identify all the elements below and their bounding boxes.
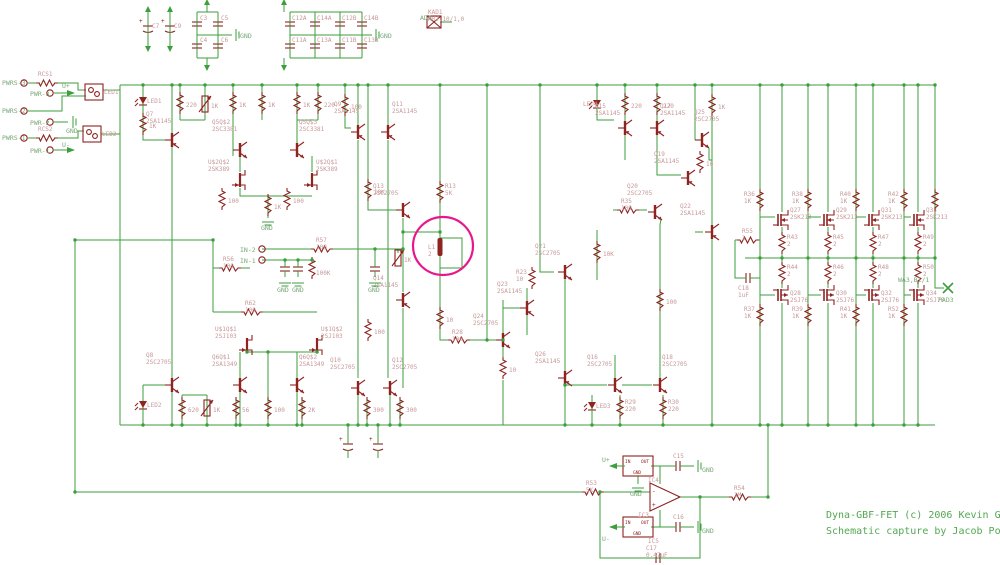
svg-text:C12A: C12A bbox=[292, 15, 307, 22]
npn-q8: Q82SC2705 bbox=[146, 352, 179, 393]
junction-dot bbox=[710, 423, 713, 426]
junction-dot bbox=[438, 83, 441, 86]
svg-text:2SC3381: 2SC3381 bbox=[212, 126, 238, 133]
junction-dot bbox=[933, 256, 936, 259]
svg-text:OUT: OUT bbox=[641, 520, 649, 526]
svg-text:1K: 1K bbox=[888, 198, 896, 205]
svg-text:R28: R28 bbox=[452, 329, 463, 336]
svg-text:2SA1145: 2SA1145 bbox=[654, 158, 680, 165]
svg-text:C18: C18 bbox=[738, 285, 749, 292]
svg-text:LED1: LED1 bbox=[104, 89, 119, 96]
res_v: 2K bbox=[299, 397, 316, 419]
led-led2: LED2 bbox=[135, 396, 162, 414]
svg-text:100: 100 bbox=[621, 205, 632, 212]
svg-text:1K: 1K bbox=[213, 407, 221, 414]
junction-dot bbox=[598, 490, 601, 493]
svg-text:2SC2705: 2SC2705 bbox=[662, 361, 688, 368]
junction-dot bbox=[356, 83, 359, 86]
svg-text:Q20: Q20 bbox=[627, 183, 638, 190]
junction-dot bbox=[806, 83, 809, 86]
svg-text:U$2Q$1: U$2Q$1 bbox=[316, 159, 338, 166]
svg-text:10K: 10K bbox=[603, 251, 614, 258]
cap_v-c14a: C14A bbox=[310, 15, 332, 32]
svg-text:C3: C3 bbox=[200, 15, 208, 22]
res_v-r46: R462 bbox=[825, 262, 844, 284]
svg-text:1K: 1K bbox=[239, 102, 247, 109]
svg-text:C13A: C13A bbox=[317, 37, 332, 44]
junction-dot bbox=[401, 247, 404, 250]
junction-dot bbox=[806, 256, 809, 259]
svg-text:100: 100 bbox=[316, 244, 327, 251]
res_h-rcs1: RCS1 bbox=[36, 71, 58, 86]
junction-dot bbox=[316, 83, 319, 86]
svg-text:1K: 1K bbox=[840, 313, 848, 320]
svg-text:Q13: Q13 bbox=[373, 183, 384, 190]
net-label-gnd: GND bbox=[261, 224, 273, 232]
svg-text:2SC2705: 2SC2705 bbox=[627, 190, 653, 197]
cap_h-c15: C15 bbox=[670, 453, 686, 471]
svg-text:M02,10/1,0: M02,10/1,0 bbox=[428, 16, 465, 23]
svg-text:Q25: Q25 bbox=[694, 109, 705, 116]
pnp-q22: Q222SA1145 bbox=[680, 203, 719, 240]
npn-q10: Q102SC2705 bbox=[330, 357, 365, 396]
svg-text:C17: C17 bbox=[646, 545, 657, 552]
res_h-r57: R57100 bbox=[311, 237, 333, 252]
cap_v-c12b: C12B bbox=[335, 15, 357, 32]
svg-text:R41: R41 bbox=[840, 306, 851, 313]
net-label-pwrs-1: PWRS-1 bbox=[2, 134, 26, 142]
svg-text:2SA1349: 2SA1349 bbox=[299, 361, 325, 368]
svg-text:10: 10 bbox=[509, 367, 517, 374]
fet_n-q31: Q312SK213 bbox=[864, 207, 903, 230]
cap_v bbox=[280, 261, 290, 277]
cap_v-c12a: C12A bbox=[285, 15, 307, 32]
vup bbox=[167, 6, 173, 19]
junction-dot bbox=[438, 230, 441, 233]
svg-text:R54: R54 bbox=[734, 485, 745, 492]
junction-dot bbox=[710, 83, 713, 86]
svg-text:100K: 100K bbox=[316, 270, 331, 277]
box-led1: LED1 bbox=[85, 84, 119, 100]
res_v-r45: R452 bbox=[825, 232, 844, 254]
junction-dot bbox=[501, 338, 504, 341]
junction-dot bbox=[871, 83, 874, 86]
trim: 1K bbox=[199, 96, 219, 112]
led-led3: LED3 bbox=[584, 397, 611, 415]
svg-text:2SC2705: 2SC2705 bbox=[694, 116, 720, 123]
svg-text:Q6Q$1: Q6Q$1 bbox=[212, 354, 230, 361]
junction-dot bbox=[758, 83, 761, 86]
svg-text:Q21: Q21 bbox=[535, 243, 546, 250]
net-label-gnd: GND bbox=[630, 490, 642, 498]
svg-text:OUT: OUT bbox=[641, 459, 649, 465]
npn-q13: Q132SC2705 bbox=[373, 183, 410, 218]
svg-text:1K: 1K bbox=[303, 102, 311, 109]
gnd_r bbox=[698, 460, 701, 472]
arr_r bbox=[60, 90, 75, 96]
res_h-r54: R541M bbox=[729, 485, 751, 500]
svg-text:1K: 1K bbox=[268, 102, 276, 109]
junction-dot bbox=[283, 258, 286, 261]
svg-text:IN: IN bbox=[625, 459, 631, 465]
svg-text:2SA1145: 2SA1145 bbox=[595, 110, 621, 117]
svg-text:2SJ76: 2SJ76 bbox=[881, 297, 899, 304]
junction-dot bbox=[295, 423, 298, 426]
junction-dot bbox=[315, 350, 318, 353]
net-label-pwrs-2: PWRS-2 bbox=[2, 107, 26, 115]
svg-text:100: 100 bbox=[666, 299, 677, 306]
svg-text:2: 2 bbox=[787, 241, 791, 248]
title-line2: Schematic capture by Jacob Potter bbox=[826, 524, 1000, 540]
junction-dot bbox=[365, 423, 368, 426]
junction-dot bbox=[854, 423, 857, 426]
svg-text:2SJ103: 2SJ103 bbox=[215, 333, 237, 340]
net-label-wa3b11: WA3,B1/1 bbox=[898, 276, 929, 284]
junction-dot bbox=[806, 423, 809, 426]
vup bbox=[281, 0, 287, 12]
gnd_r bbox=[236, 29, 239, 41]
net-label-pwr-3: PWR-3 bbox=[30, 90, 50, 98]
net-label-u-: U- bbox=[602, 535, 610, 543]
net-label-in-1: IN-1 bbox=[240, 257, 256, 265]
vdn bbox=[167, 39, 173, 52]
net-label-gnd: GND bbox=[368, 286, 380, 294]
svg-text:R52: R52 bbox=[888, 306, 899, 313]
svg-text:R39: R39 bbox=[792, 306, 803, 313]
junction-dot bbox=[916, 83, 919, 86]
junction-dot bbox=[595, 83, 598, 86]
res_v-r23: R2310 bbox=[516, 267, 535, 289]
svg-text:Q18: Q18 bbox=[662, 354, 673, 361]
net-label-u+: U+ bbox=[602, 456, 610, 464]
res_v-r47: R472 bbox=[870, 232, 889, 254]
fet_n-q29: Q292SK213 bbox=[819, 207, 858, 230]
svg-text:1K: 1K bbox=[718, 104, 726, 111]
svg-text:10: 10 bbox=[446, 317, 454, 324]
svg-text:100: 100 bbox=[452, 336, 463, 343]
res_v: 100 bbox=[284, 188, 304, 210]
junction-dot bbox=[485, 338, 488, 341]
net-label-adj: ADJ bbox=[420, 14, 432, 22]
svg-text:LED3: LED3 bbox=[596, 403, 611, 410]
svg-text:R13: R13 bbox=[445, 183, 456, 190]
svg-text:C16: C16 bbox=[673, 514, 684, 521]
npn-q16: Q162SC2705 bbox=[587, 354, 622, 393]
cap_v-c6: C6 bbox=[213, 37, 229, 54]
jfet-u$2q$1: U$2Q$12SK389 bbox=[304, 159, 338, 190]
svg-text:5K: 5K bbox=[586, 487, 594, 494]
svg-text:2SK213: 2SK213 bbox=[926, 214, 948, 221]
jfet-u$2q$2: U$2Q$22SK389 bbox=[208, 159, 245, 190]
svg-text:R49: R49 bbox=[923, 234, 934, 241]
res_v: 1K bbox=[230, 92, 247, 114]
res_h-r28: R28100 bbox=[448, 329, 470, 343]
svg-text:1uF: 1uF bbox=[738, 292, 749, 299]
svg-text:C4: C4 bbox=[200, 37, 208, 44]
svg-text:620: 620 bbox=[188, 407, 199, 414]
svg-text:Q24: Q24 bbox=[473, 313, 484, 320]
junction-dot bbox=[758, 256, 761, 259]
junction-dot bbox=[563, 383, 566, 386]
svg-text:2SA1349: 2SA1349 bbox=[212, 361, 238, 368]
junction-dot bbox=[346, 423, 349, 426]
svg-text:Q19: Q19 bbox=[654, 151, 665, 158]
svg-text:Q23: Q23 bbox=[497, 281, 508, 288]
net-label-gnd: GND bbox=[702, 466, 714, 474]
svg-text:2: 2 bbox=[878, 241, 882, 248]
jfet-u$1q$2: U$1Q$22SJ103 bbox=[309, 326, 343, 355]
junction-dot bbox=[902, 83, 905, 86]
svg-text:Q32: Q32 bbox=[881, 290, 892, 297]
junction-dot bbox=[401, 230, 404, 233]
cap_v-c11a: C11A bbox=[285, 37, 307, 54]
svg-text:2SC2705: 2SC2705 bbox=[473, 320, 499, 327]
svg-text:100: 100 bbox=[245, 307, 256, 314]
svg-text:Q26: Q26 bbox=[535, 351, 546, 358]
svg-text:+: + bbox=[139, 18, 143, 25]
svg-text:LED1: LED1 bbox=[147, 98, 162, 105]
junction-dot bbox=[245, 350, 248, 353]
svg-text:Q10: Q10 bbox=[330, 357, 341, 364]
net-label-u-: U- bbox=[62, 141, 70, 149]
net-label-pwrs-3: PWRS-3 bbox=[2, 79, 26, 87]
fet_p-q30: Q302SJ76 bbox=[819, 285, 854, 305]
npn-q20: Q202SC2705 bbox=[627, 183, 662, 220]
junction-dot bbox=[916, 423, 919, 426]
junction-dot bbox=[388, 423, 391, 426]
svg-text:Q11: Q11 bbox=[392, 101, 403, 108]
svg-text:GND: GND bbox=[633, 531, 641, 537]
svg-text:2SC2705: 2SC2705 bbox=[146, 359, 172, 366]
junction-dot bbox=[693, 83, 696, 86]
svg-text:2SA1145: 2SA1145 bbox=[535, 358, 561, 365]
svg-text:R30: R30 bbox=[668, 399, 679, 406]
svg-text:R29: R29 bbox=[625, 399, 636, 406]
res_v-r44: R442 bbox=[779, 262, 798, 284]
svg-text:1K: 1K bbox=[404, 257, 412, 264]
svg-text:Q5Q$3: Q5Q$3 bbox=[299, 119, 317, 126]
led-led1: LED1 bbox=[135, 92, 162, 110]
res_v: 1K bbox=[265, 194, 282, 216]
vdn bbox=[281, 58, 287, 71]
svg-text:R46: R46 bbox=[833, 264, 844, 271]
svg-text:LED2: LED2 bbox=[147, 402, 162, 409]
res_h-r56: R56100 bbox=[219, 256, 241, 271]
net-label-pwr-2: PWR-2 bbox=[30, 119, 50, 127]
svg-text:Q9: Q9 bbox=[334, 101, 342, 108]
svg-text:2SC3381: 2SC3381 bbox=[299, 126, 325, 133]
junction-dot bbox=[854, 256, 857, 259]
svg-text:2: 2 bbox=[923, 241, 927, 248]
pnp-q11: Q112SA1145 bbox=[381, 101, 418, 140]
svg-text:Q34: Q34 bbox=[926, 290, 937, 297]
svg-text:+: + bbox=[652, 502, 656, 509]
svg-text:100: 100 bbox=[228, 198, 239, 205]
junction-dot bbox=[238, 423, 241, 426]
svg-text:1K: 1K bbox=[744, 313, 752, 320]
junction-dot bbox=[590, 423, 593, 426]
svg-text:1K: 1K bbox=[792, 198, 800, 205]
xpad bbox=[943, 283, 953, 293]
junction-dot bbox=[618, 423, 621, 426]
cap_p: + bbox=[339, 436, 353, 454]
cap_p: + bbox=[369, 436, 383, 454]
svg-text:1K: 1K bbox=[888, 313, 896, 320]
svg-text:2SA1145: 2SA1145 bbox=[392, 108, 418, 115]
svg-text:Q27: Q27 bbox=[790, 207, 801, 214]
svg-text:U$2Q$2: U$2Q$2 bbox=[208, 159, 230, 166]
res_h-r35: R35100 bbox=[617, 198, 639, 213]
svg-text:R57: R57 bbox=[316, 237, 327, 244]
svg-text:U$1Q$1: U$1Q$1 bbox=[215, 326, 237, 333]
junction-dot bbox=[902, 256, 905, 259]
res_v: 10 bbox=[697, 151, 714, 173]
junction-dot bbox=[871, 256, 874, 259]
junction-dot bbox=[296, 258, 299, 261]
svg-text:2SC2705: 2SC2705 bbox=[587, 361, 613, 368]
svg-text:2SA1145: 2SA1145 bbox=[334, 108, 360, 115]
junction-dot bbox=[766, 495, 769, 498]
vdn bbox=[145, 39, 151, 52]
svg-text:2: 2 bbox=[833, 241, 837, 248]
net-label-gnd: GND bbox=[277, 286, 289, 294]
net-label-pwr-1: PWR-1 bbox=[30, 147, 50, 155]
pnp-q26: Q262SA1145 bbox=[535, 351, 572, 386]
junction-dot bbox=[205, 423, 208, 426]
junction-dot bbox=[780, 83, 783, 86]
junction-dot bbox=[655, 83, 658, 86]
svg-text:R48: R48 bbox=[878, 264, 889, 271]
fet_p-q28: Q282SJ76 bbox=[773, 285, 808, 305]
svg-text:220: 220 bbox=[625, 406, 636, 413]
ind-l1: L12 bbox=[428, 238, 443, 258]
net-label-in-2: IN-2 bbox=[240, 246, 256, 254]
svg-text:R42: R42 bbox=[888, 191, 899, 198]
svg-text:+: + bbox=[161, 18, 165, 25]
cap_v-c5: C5 bbox=[213, 15, 229, 32]
highlight-circle bbox=[413, 217, 473, 275]
vup bbox=[145, 6, 151, 19]
svg-text:2: 2 bbox=[428, 251, 432, 258]
svg-text:C12B: C12B bbox=[342, 15, 357, 22]
res_h-r55: R551 bbox=[737, 228, 759, 243]
junction-dot bbox=[871, 423, 874, 426]
svg-text:Q6Q$2: Q6Q$2 bbox=[299, 354, 317, 361]
res_v: 56 bbox=[233, 397, 250, 419]
junction-dot bbox=[211, 238, 214, 241]
svg-text:10: 10 bbox=[516, 276, 524, 283]
junction-dot bbox=[780, 423, 783, 426]
svg-text:C14B: C14B bbox=[364, 15, 379, 22]
svg-text:2SA1145: 2SA1145 bbox=[660, 110, 686, 117]
cap_p-c9: +C9 bbox=[161, 18, 182, 36]
svg-text:100: 100 bbox=[274, 407, 285, 414]
junction-dot bbox=[266, 423, 269, 426]
junction-dot bbox=[141, 83, 144, 86]
junction-dot bbox=[933, 83, 936, 86]
svg-text:R37: R37 bbox=[744, 306, 755, 313]
svg-text:2SA1145: 2SA1145 bbox=[680, 210, 706, 217]
svg-text:2SJ76: 2SJ76 bbox=[836, 297, 854, 304]
junction-dot bbox=[854, 83, 857, 86]
net-label-gnd: GND bbox=[292, 286, 304, 294]
junction-dot bbox=[73, 490, 76, 493]
junction-dot bbox=[766, 423, 769, 426]
arr_l bbox=[609, 524, 624, 530]
svg-text:56: 56 bbox=[242, 407, 250, 414]
res_h-rcs2: RCS2 bbox=[36, 126, 58, 141]
svg-text:+: + bbox=[369, 436, 373, 443]
fet_n-q33: Q332SK213 bbox=[909, 207, 948, 230]
junction-dot bbox=[266, 350, 269, 353]
junction-dot bbox=[73, 238, 76, 241]
svg-text:2: 2 bbox=[833, 271, 837, 278]
junction-dot bbox=[234, 423, 237, 426]
svg-text:1K: 1K bbox=[211, 103, 219, 110]
svg-text:2K: 2K bbox=[308, 407, 316, 414]
svg-text:Q7: Q7 bbox=[146, 111, 154, 118]
res_h-r62: R62100 bbox=[241, 300, 263, 315]
junction-dot bbox=[902, 423, 905, 426]
svg-text:R36: R36 bbox=[744, 191, 755, 198]
cap_v-c13a: C13A bbox=[310, 37, 332, 54]
junction-dot bbox=[178, 83, 181, 86]
svg-text:2: 2 bbox=[878, 271, 882, 278]
fet_n-q27: Q272SK213 bbox=[773, 207, 812, 230]
svg-text:L1: L1 bbox=[428, 244, 436, 251]
net-label-gnd: GND bbox=[66, 127, 78, 135]
junction-dot bbox=[373, 247, 376, 250]
res_v-r43: R432 bbox=[779, 232, 798, 254]
junction-dot bbox=[623, 83, 626, 86]
junction-dot bbox=[826, 256, 829, 259]
svg-text:100: 100 bbox=[374, 329, 385, 336]
svg-text:300: 300 bbox=[406, 407, 417, 414]
res_v: 100 bbox=[365, 319, 385, 341]
junction-dot bbox=[780, 256, 783, 259]
svg-text:Q30: Q30 bbox=[836, 290, 847, 297]
npn-q6q$2: Q6Q$22SA1349 bbox=[290, 354, 325, 393]
svg-text:R35: R35 bbox=[621, 198, 632, 205]
svg-text:5K: 5K bbox=[445, 190, 453, 197]
res_v: 10 bbox=[500, 357, 517, 379]
res_v: 10 bbox=[437, 307, 454, 329]
svg-text:220: 220 bbox=[631, 103, 642, 110]
svg-text:10: 10 bbox=[706, 161, 714, 168]
regbox-ic4: INOUTGNDIC4 bbox=[623, 456, 659, 484]
vup bbox=[204, 0, 210, 12]
junction-dot bbox=[563, 423, 566, 426]
svg-text:IN: IN bbox=[625, 520, 631, 526]
arr_l bbox=[609, 463, 624, 469]
svg-text:R40: R40 bbox=[840, 191, 851, 198]
cap_v-c11b: C11B bbox=[335, 37, 357, 54]
net-label-gnd: GND bbox=[702, 527, 714, 535]
res_v-r49: R492 bbox=[915, 232, 934, 254]
svg-text:2SA1145: 2SA1145 bbox=[497, 288, 523, 295]
wires-layer bbox=[28, 12, 944, 558]
svg-text:C9: C9 bbox=[174, 23, 182, 30]
junction-dot bbox=[356, 423, 359, 426]
res_v: 1K bbox=[294, 92, 311, 114]
svg-text:U$1Q$2: U$1Q$2 bbox=[321, 326, 343, 333]
junction-dot bbox=[231, 83, 234, 86]
svg-text:C11B: C11B bbox=[342, 37, 357, 44]
net-label-gnd: GND bbox=[380, 32, 392, 40]
svg-text:Q17: Q17 bbox=[660, 103, 671, 110]
schematic-canvas: RCS1RCS2LED1LED2+C7+C9C3C5C4C6C12AC14AC1… bbox=[0, 0, 1000, 565]
junction-dot bbox=[485, 83, 488, 86]
